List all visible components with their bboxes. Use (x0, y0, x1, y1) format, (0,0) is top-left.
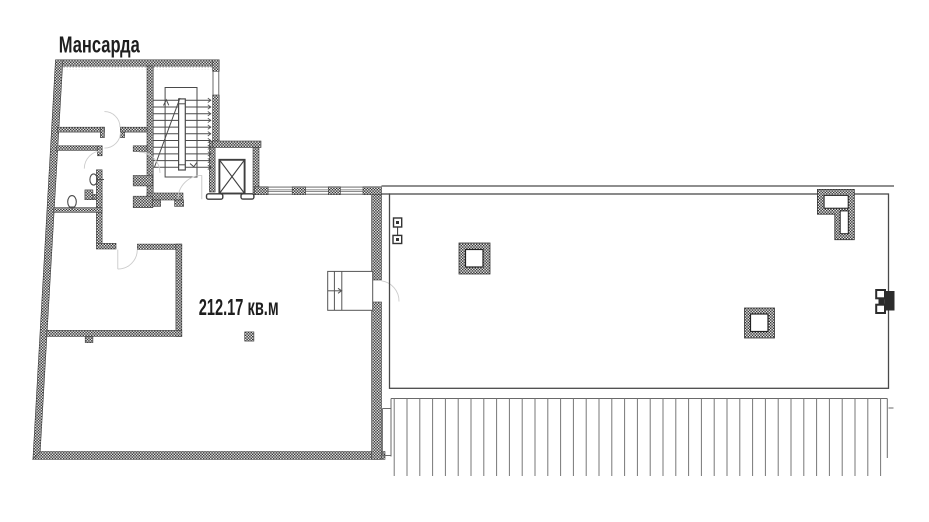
svg-text:Мансарда: Мансарда (59, 31, 140, 57)
svg-text:212.17 кв.м: 212.17 кв.м (199, 294, 279, 320)
